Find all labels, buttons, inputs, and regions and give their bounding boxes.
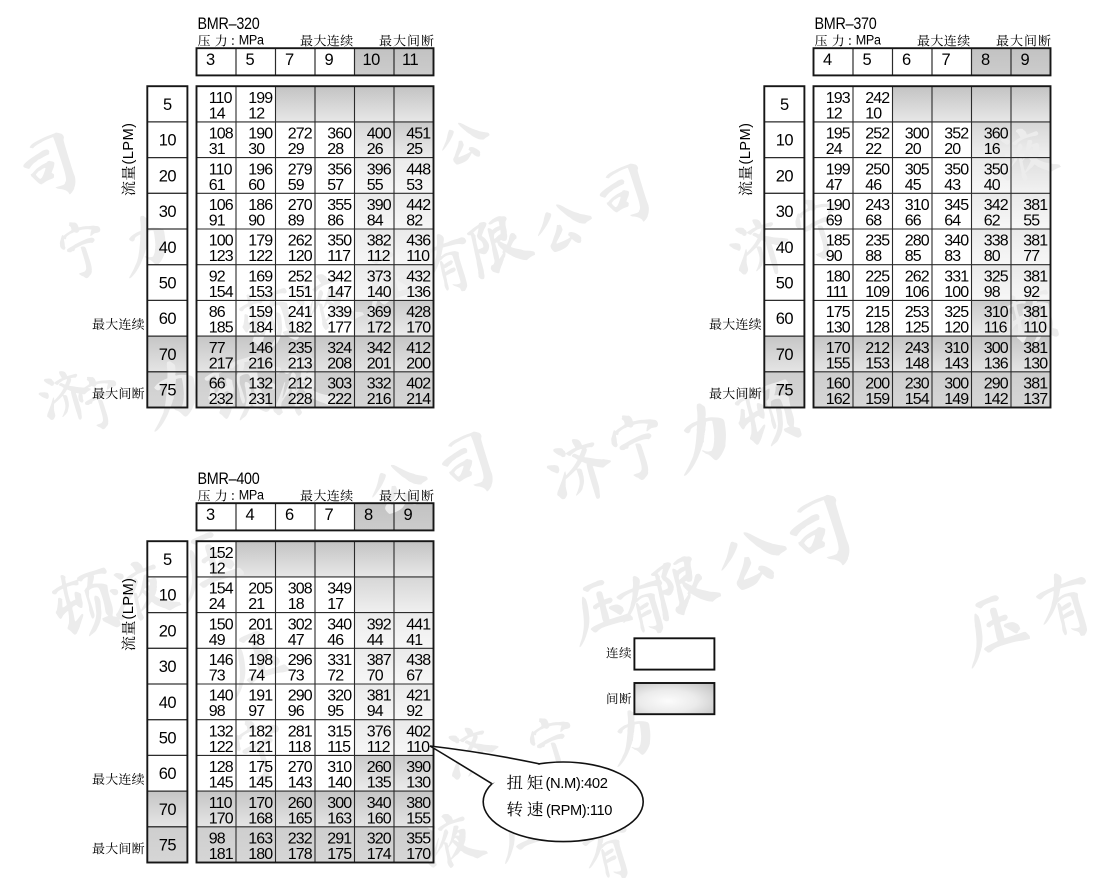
svg-text:159: 159 xyxy=(248,304,273,321)
svg-text:180: 180 xyxy=(826,268,851,285)
svg-text:122: 122 xyxy=(248,248,273,265)
svg-text:85: 85 xyxy=(905,248,922,265)
svg-text:199: 199 xyxy=(248,90,273,107)
svg-text:296: 296 xyxy=(288,652,313,669)
svg-text:201: 201 xyxy=(367,355,392,372)
svg-text:5: 5 xyxy=(780,96,789,114)
svg-text:83: 83 xyxy=(944,248,961,265)
svg-text:110: 110 xyxy=(209,161,233,178)
svg-text:184: 184 xyxy=(248,320,273,337)
svg-text:98: 98 xyxy=(209,703,226,720)
svg-text:400: 400 xyxy=(367,126,392,143)
svg-text:382: 382 xyxy=(367,233,392,250)
svg-text:98: 98 xyxy=(984,284,1001,301)
svg-text:128: 128 xyxy=(865,320,890,337)
svg-text:17: 17 xyxy=(327,596,344,613)
svg-text:432: 432 xyxy=(406,268,431,285)
svg-text:60: 60 xyxy=(776,310,794,328)
svg-text:111: 111 xyxy=(826,284,849,301)
svg-text:75: 75 xyxy=(776,382,794,400)
svg-text:320: 320 xyxy=(367,831,392,848)
svg-text:160: 160 xyxy=(367,810,392,827)
svg-text:30: 30 xyxy=(159,658,177,676)
svg-text:235: 235 xyxy=(865,233,890,250)
svg-text:70: 70 xyxy=(159,346,177,364)
svg-text:280: 280 xyxy=(905,233,930,250)
svg-text:92: 92 xyxy=(1023,284,1040,301)
svg-text:12: 12 xyxy=(248,105,265,122)
svg-text:84: 84 xyxy=(367,213,384,230)
svg-text:369: 369 xyxy=(367,304,392,321)
svg-text:290: 290 xyxy=(984,376,1009,393)
svg-text:90: 90 xyxy=(248,213,265,230)
svg-text:49: 49 xyxy=(209,632,226,649)
svg-text:168: 168 xyxy=(248,810,273,827)
svg-text:98: 98 xyxy=(209,831,226,848)
svg-text:14: 14 xyxy=(209,105,226,122)
svg-text:146: 146 xyxy=(209,652,234,669)
svg-text:53: 53 xyxy=(406,177,423,194)
svg-text:402: 402 xyxy=(406,723,431,740)
svg-text:195: 195 xyxy=(826,126,851,143)
svg-text:185: 185 xyxy=(826,233,851,250)
svg-text:208: 208 xyxy=(327,355,352,372)
svg-text:149: 149 xyxy=(944,391,969,408)
svg-text:182: 182 xyxy=(248,723,273,740)
svg-text:BMR–370: BMR–370 xyxy=(815,14,877,33)
svg-text:132: 132 xyxy=(248,376,273,393)
svg-text:153: 153 xyxy=(865,355,890,372)
svg-text:30: 30 xyxy=(776,203,794,221)
svg-text:155: 155 xyxy=(826,355,851,372)
svg-text:175: 175 xyxy=(826,304,851,321)
svg-text:18: 18 xyxy=(288,596,305,613)
svg-text:92: 92 xyxy=(406,703,423,720)
svg-text:96: 96 xyxy=(288,703,305,720)
svg-text:136: 136 xyxy=(984,355,1009,372)
svg-text:381: 381 xyxy=(1023,268,1048,285)
svg-text:345: 345 xyxy=(944,197,969,214)
svg-text:350: 350 xyxy=(944,161,969,178)
svg-text:60: 60 xyxy=(248,177,265,194)
svg-text:175: 175 xyxy=(327,846,352,863)
svg-text:152: 152 xyxy=(209,545,234,562)
svg-text:50: 50 xyxy=(159,730,177,748)
svg-text:86: 86 xyxy=(327,213,344,230)
svg-text:281: 281 xyxy=(288,723,313,740)
svg-text:31: 31 xyxy=(209,141,226,158)
svg-text:90: 90 xyxy=(826,248,843,265)
svg-text:40: 40 xyxy=(776,239,794,257)
svg-text:349: 349 xyxy=(327,581,352,598)
svg-text:310: 310 xyxy=(984,304,1009,321)
svg-text:24: 24 xyxy=(826,141,843,158)
svg-text:74: 74 xyxy=(248,668,265,685)
svg-text:122: 122 xyxy=(209,739,234,756)
svg-text:186: 186 xyxy=(248,197,273,214)
svg-text:155: 155 xyxy=(406,810,431,827)
svg-text:110: 110 xyxy=(1023,320,1047,337)
svg-text:381: 381 xyxy=(1023,197,1048,214)
svg-text:300: 300 xyxy=(905,126,930,143)
svg-text:70: 70 xyxy=(159,801,177,819)
svg-text:12: 12 xyxy=(826,105,843,122)
svg-text:8: 8 xyxy=(364,506,373,524)
svg-text:339: 339 xyxy=(327,304,352,321)
svg-text:MPa: MPa xyxy=(239,488,265,503)
svg-text:6: 6 xyxy=(285,506,294,524)
svg-text:315: 315 xyxy=(327,723,352,740)
svg-text:MPa: MPa xyxy=(856,33,882,48)
svg-text:178: 178 xyxy=(288,846,313,863)
svg-text:61: 61 xyxy=(209,177,226,194)
svg-text:303: 303 xyxy=(327,376,352,393)
svg-text:216: 216 xyxy=(248,355,273,372)
svg-text:376: 376 xyxy=(367,723,392,740)
svg-text:228: 228 xyxy=(288,391,313,408)
svg-text:162: 162 xyxy=(826,391,851,408)
svg-text:30: 30 xyxy=(248,141,265,158)
svg-text:5: 5 xyxy=(863,51,872,69)
svg-text:165: 165 xyxy=(288,810,313,827)
svg-text:179: 179 xyxy=(248,233,273,250)
svg-text:380: 380 xyxy=(406,795,431,812)
svg-text:3: 3 xyxy=(206,506,215,524)
svg-text:10: 10 xyxy=(865,105,882,122)
svg-text:205: 205 xyxy=(248,581,273,598)
svg-text:215: 215 xyxy=(865,304,890,321)
svg-text:82: 82 xyxy=(406,213,423,230)
svg-text:212: 212 xyxy=(288,376,313,393)
svg-text:130: 130 xyxy=(826,320,851,337)
svg-text:10: 10 xyxy=(159,587,177,605)
svg-text:262: 262 xyxy=(288,233,313,250)
svg-text:153: 153 xyxy=(248,284,273,301)
svg-text:95: 95 xyxy=(327,703,344,720)
svg-text:108: 108 xyxy=(209,126,234,143)
svg-text:200: 200 xyxy=(406,355,431,372)
svg-text:170: 170 xyxy=(248,795,273,812)
svg-text:115: 115 xyxy=(327,739,351,756)
svg-text:140: 140 xyxy=(209,688,234,705)
svg-text:214: 214 xyxy=(406,391,431,408)
svg-text:9: 9 xyxy=(404,506,413,524)
svg-text:29: 29 xyxy=(288,141,305,158)
svg-text:217: 217 xyxy=(209,355,234,372)
svg-text:8: 8 xyxy=(981,51,990,69)
svg-text:235: 235 xyxy=(288,340,313,357)
svg-text:163: 163 xyxy=(248,831,273,848)
svg-text:340: 340 xyxy=(367,795,392,812)
svg-text:64: 64 xyxy=(944,213,961,230)
svg-text:3: 3 xyxy=(206,51,215,69)
svg-text:451: 451 xyxy=(406,126,431,143)
svg-text:390: 390 xyxy=(367,197,392,214)
svg-text:373: 373 xyxy=(367,268,392,285)
svg-text:170: 170 xyxy=(406,320,431,337)
svg-text:182: 182 xyxy=(288,320,313,337)
svg-text:BMR–400: BMR–400 xyxy=(198,469,260,488)
svg-text:9: 9 xyxy=(1021,51,1030,69)
svg-text:73: 73 xyxy=(209,668,226,685)
svg-text:70: 70 xyxy=(776,346,794,364)
svg-text:448: 448 xyxy=(406,161,431,178)
svg-text:342: 342 xyxy=(984,197,1009,214)
svg-text:262: 262 xyxy=(905,268,930,285)
svg-text:28: 28 xyxy=(327,141,344,158)
svg-text:40: 40 xyxy=(984,177,1001,194)
svg-text:252: 252 xyxy=(865,126,890,143)
svg-text:143: 143 xyxy=(944,355,969,372)
svg-text:172: 172 xyxy=(367,320,392,337)
svg-text:360: 360 xyxy=(327,126,352,143)
svg-text:387: 387 xyxy=(367,652,392,669)
svg-text:402: 402 xyxy=(406,376,431,393)
svg-text:360: 360 xyxy=(984,126,1009,143)
svg-text:43: 43 xyxy=(944,177,961,194)
svg-text:381: 381 xyxy=(1023,340,1048,357)
svg-text:350: 350 xyxy=(984,161,1009,178)
svg-text:116: 116 xyxy=(984,320,1008,337)
svg-text:MPa: MPa xyxy=(239,33,265,48)
svg-text:145: 145 xyxy=(209,775,234,792)
svg-text:232: 232 xyxy=(288,831,313,848)
svg-text:381: 381 xyxy=(1023,304,1048,321)
svg-text:22: 22 xyxy=(865,141,882,158)
svg-text:190: 190 xyxy=(826,197,851,214)
svg-text:20: 20 xyxy=(776,167,794,185)
svg-text:69: 69 xyxy=(826,213,843,230)
svg-text:59: 59 xyxy=(288,177,305,194)
svg-text:436: 436 xyxy=(406,233,431,250)
svg-text:243: 243 xyxy=(905,340,930,357)
svg-text:302: 302 xyxy=(288,616,313,633)
svg-text:80: 80 xyxy=(984,248,1001,265)
svg-text:441: 441 xyxy=(406,616,431,633)
svg-text:231: 231 xyxy=(248,391,273,408)
svg-text:110: 110 xyxy=(209,795,233,812)
svg-text:20: 20 xyxy=(159,622,177,640)
svg-text:68: 68 xyxy=(865,213,882,230)
svg-text:106: 106 xyxy=(905,284,930,301)
svg-text:332: 332 xyxy=(367,376,392,393)
svg-text:151: 151 xyxy=(288,284,313,301)
svg-text:174: 174 xyxy=(367,846,392,863)
svg-text:253: 253 xyxy=(905,304,930,321)
svg-text:5: 5 xyxy=(163,96,172,114)
svg-text:222: 222 xyxy=(327,391,352,408)
svg-text:148: 148 xyxy=(905,355,930,372)
svg-text:305: 305 xyxy=(905,161,930,178)
svg-text:338: 338 xyxy=(984,233,1009,250)
svg-text:355: 355 xyxy=(327,197,352,214)
svg-text:(LPM): (LPM) xyxy=(121,123,137,165)
svg-text:137: 137 xyxy=(1023,391,1048,408)
svg-text:270: 270 xyxy=(288,759,313,776)
svg-text:41: 41 xyxy=(406,632,423,649)
svg-text:428: 428 xyxy=(406,304,431,321)
svg-text:177: 177 xyxy=(327,320,352,337)
svg-text:310: 310 xyxy=(905,197,930,214)
svg-text:100: 100 xyxy=(209,233,234,250)
svg-text:135: 135 xyxy=(367,775,392,792)
svg-text:106: 106 xyxy=(209,197,234,214)
svg-text:97: 97 xyxy=(248,703,265,720)
svg-text:170: 170 xyxy=(209,810,234,827)
svg-text:10: 10 xyxy=(159,132,177,150)
svg-text:181: 181 xyxy=(209,846,234,863)
svg-text:86: 86 xyxy=(209,304,226,321)
svg-text:20: 20 xyxy=(905,141,922,158)
svg-text:10: 10 xyxy=(776,132,794,150)
svg-text:381: 381 xyxy=(1023,376,1048,393)
svg-text:21: 21 xyxy=(248,596,265,613)
svg-text:342: 342 xyxy=(327,268,352,285)
svg-text:324: 324 xyxy=(327,340,352,357)
svg-text:40: 40 xyxy=(159,239,177,257)
svg-text:50: 50 xyxy=(776,275,794,293)
svg-text:112: 112 xyxy=(367,248,391,265)
svg-text:191: 191 xyxy=(248,688,273,705)
svg-text:75: 75 xyxy=(159,382,177,400)
svg-text:196: 196 xyxy=(248,161,273,178)
svg-text:390: 390 xyxy=(406,759,431,776)
svg-text:40: 40 xyxy=(159,694,177,712)
svg-text:128: 128 xyxy=(209,759,234,776)
svg-text:185: 185 xyxy=(209,320,234,337)
svg-text:73: 73 xyxy=(288,668,305,685)
svg-text:270: 270 xyxy=(288,197,313,214)
svg-text:260: 260 xyxy=(288,795,313,812)
svg-text:199: 199 xyxy=(826,161,851,178)
svg-text:77: 77 xyxy=(209,340,226,357)
svg-text:241: 241 xyxy=(288,304,313,321)
svg-text:342: 342 xyxy=(367,340,392,357)
svg-text:412: 412 xyxy=(406,340,431,357)
svg-text:331: 331 xyxy=(327,652,352,669)
svg-text:340: 340 xyxy=(327,616,352,633)
svg-text:120: 120 xyxy=(944,320,969,337)
svg-text:310: 310 xyxy=(327,759,352,776)
svg-text:392: 392 xyxy=(367,616,392,633)
svg-text:(LPM): (LPM) xyxy=(121,578,137,620)
svg-text:170: 170 xyxy=(826,340,851,357)
svg-text:146: 146 xyxy=(248,340,273,357)
svg-text:230: 230 xyxy=(905,376,930,393)
svg-text:BMR–320: BMR–320 xyxy=(198,14,260,33)
svg-text:4: 4 xyxy=(823,51,832,69)
svg-text:421: 421 xyxy=(406,688,431,705)
svg-text:16: 16 xyxy=(984,141,1001,158)
svg-text:123: 123 xyxy=(209,248,234,265)
svg-text:143: 143 xyxy=(288,775,313,792)
svg-text:57: 57 xyxy=(327,177,344,194)
svg-text:109: 109 xyxy=(865,284,890,301)
svg-text:356: 356 xyxy=(327,161,352,178)
svg-text:193: 193 xyxy=(826,90,851,107)
svg-text:169: 169 xyxy=(248,268,273,285)
svg-text:25: 25 xyxy=(406,141,423,158)
svg-text:355: 355 xyxy=(406,831,431,848)
svg-text:130: 130 xyxy=(406,775,431,792)
svg-text:198: 198 xyxy=(248,652,273,669)
svg-text:213: 213 xyxy=(288,355,313,372)
svg-text:442: 442 xyxy=(406,197,431,214)
svg-text:62: 62 xyxy=(984,213,1001,230)
svg-text:112: 112 xyxy=(367,739,391,756)
svg-text:46: 46 xyxy=(327,632,344,649)
svg-text:325: 325 xyxy=(984,268,1009,285)
svg-text:160: 160 xyxy=(826,376,851,393)
svg-text:352: 352 xyxy=(944,126,969,143)
svg-text:30: 30 xyxy=(159,203,177,221)
svg-text:110: 110 xyxy=(209,90,233,107)
svg-text:300: 300 xyxy=(327,795,352,812)
svg-text:46: 46 xyxy=(865,177,882,194)
svg-text:438: 438 xyxy=(406,652,431,669)
svg-text:66: 66 xyxy=(905,213,922,230)
svg-text:7: 7 xyxy=(942,51,951,69)
svg-text:110: 110 xyxy=(406,248,430,265)
svg-text:159: 159 xyxy=(865,391,890,408)
svg-text:175: 175 xyxy=(248,759,273,776)
svg-text:47: 47 xyxy=(826,177,843,194)
svg-text:9: 9 xyxy=(325,51,334,69)
svg-text:325: 325 xyxy=(944,304,969,321)
svg-text:20: 20 xyxy=(159,167,177,185)
svg-text:381: 381 xyxy=(367,688,392,705)
svg-text:154: 154 xyxy=(209,284,234,301)
svg-text:55: 55 xyxy=(1023,213,1040,230)
svg-text:140: 140 xyxy=(367,284,392,301)
svg-text:150: 150 xyxy=(209,616,234,633)
svg-text:11: 11 xyxy=(402,51,418,69)
svg-text:6: 6 xyxy=(902,51,911,69)
svg-text:136: 136 xyxy=(406,284,431,301)
svg-text:121: 121 xyxy=(248,739,273,756)
svg-text:44: 44 xyxy=(367,632,384,649)
svg-text:60: 60 xyxy=(159,310,177,328)
svg-text:130: 130 xyxy=(1023,355,1048,372)
svg-text:47: 47 xyxy=(288,632,305,649)
svg-text:91: 91 xyxy=(209,213,226,230)
svg-text:300: 300 xyxy=(984,340,1009,357)
svg-text:145: 145 xyxy=(248,775,273,792)
svg-text:308: 308 xyxy=(288,581,313,598)
svg-text:7: 7 xyxy=(285,51,294,69)
svg-text:396: 396 xyxy=(367,161,392,178)
svg-text:225: 225 xyxy=(865,268,890,285)
svg-text:(N.M):402: (N.M):402 xyxy=(546,776,608,792)
svg-text:260: 260 xyxy=(367,759,392,776)
svg-text:252: 252 xyxy=(288,268,313,285)
svg-text:291: 291 xyxy=(327,831,352,848)
svg-text:320: 320 xyxy=(327,688,352,705)
svg-text:55: 55 xyxy=(367,177,384,194)
svg-text:20: 20 xyxy=(944,141,961,158)
svg-text:7: 7 xyxy=(325,506,334,524)
svg-text:154: 154 xyxy=(209,581,234,598)
svg-text:350: 350 xyxy=(327,233,352,250)
svg-text:290: 290 xyxy=(288,688,313,705)
svg-text:200: 200 xyxy=(865,376,890,393)
svg-text:212: 212 xyxy=(865,340,890,357)
svg-text:5: 5 xyxy=(246,51,255,69)
svg-text:50: 50 xyxy=(159,275,177,293)
svg-text:118: 118 xyxy=(288,739,312,756)
svg-text:331: 331 xyxy=(944,268,969,285)
svg-text:243: 243 xyxy=(865,197,890,214)
